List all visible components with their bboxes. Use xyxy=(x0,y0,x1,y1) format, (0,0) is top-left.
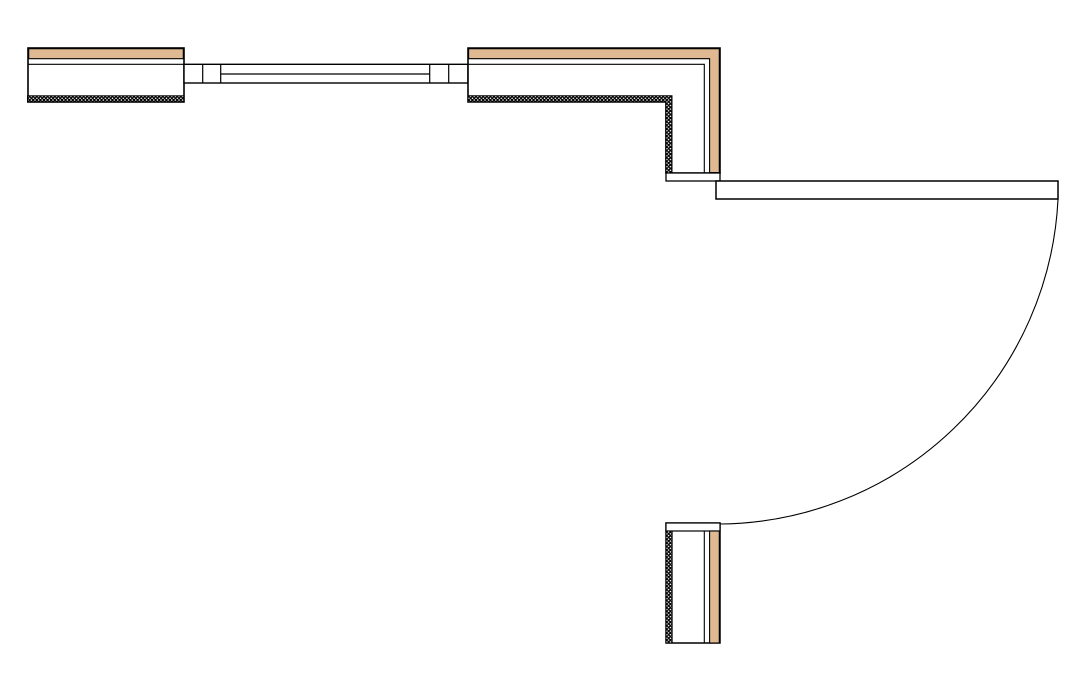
lower-wall-insulation-band xyxy=(666,531,672,643)
corner-wall-body xyxy=(468,48,720,173)
left-wall-finish-band xyxy=(29,49,184,59)
door-swing-arc xyxy=(720,200,1059,525)
plan-drawing xyxy=(0,0,1088,681)
lower-wall-finish-band xyxy=(710,531,720,643)
lower-wall-jamb-cap xyxy=(666,523,720,531)
door-head-jamb-cap xyxy=(666,173,720,181)
drawing-canvas xyxy=(0,0,1088,681)
door-leaf xyxy=(716,181,1058,199)
corner-wall-insulation-band xyxy=(468,96,672,173)
left-wall-insulation-band xyxy=(28,96,185,102)
